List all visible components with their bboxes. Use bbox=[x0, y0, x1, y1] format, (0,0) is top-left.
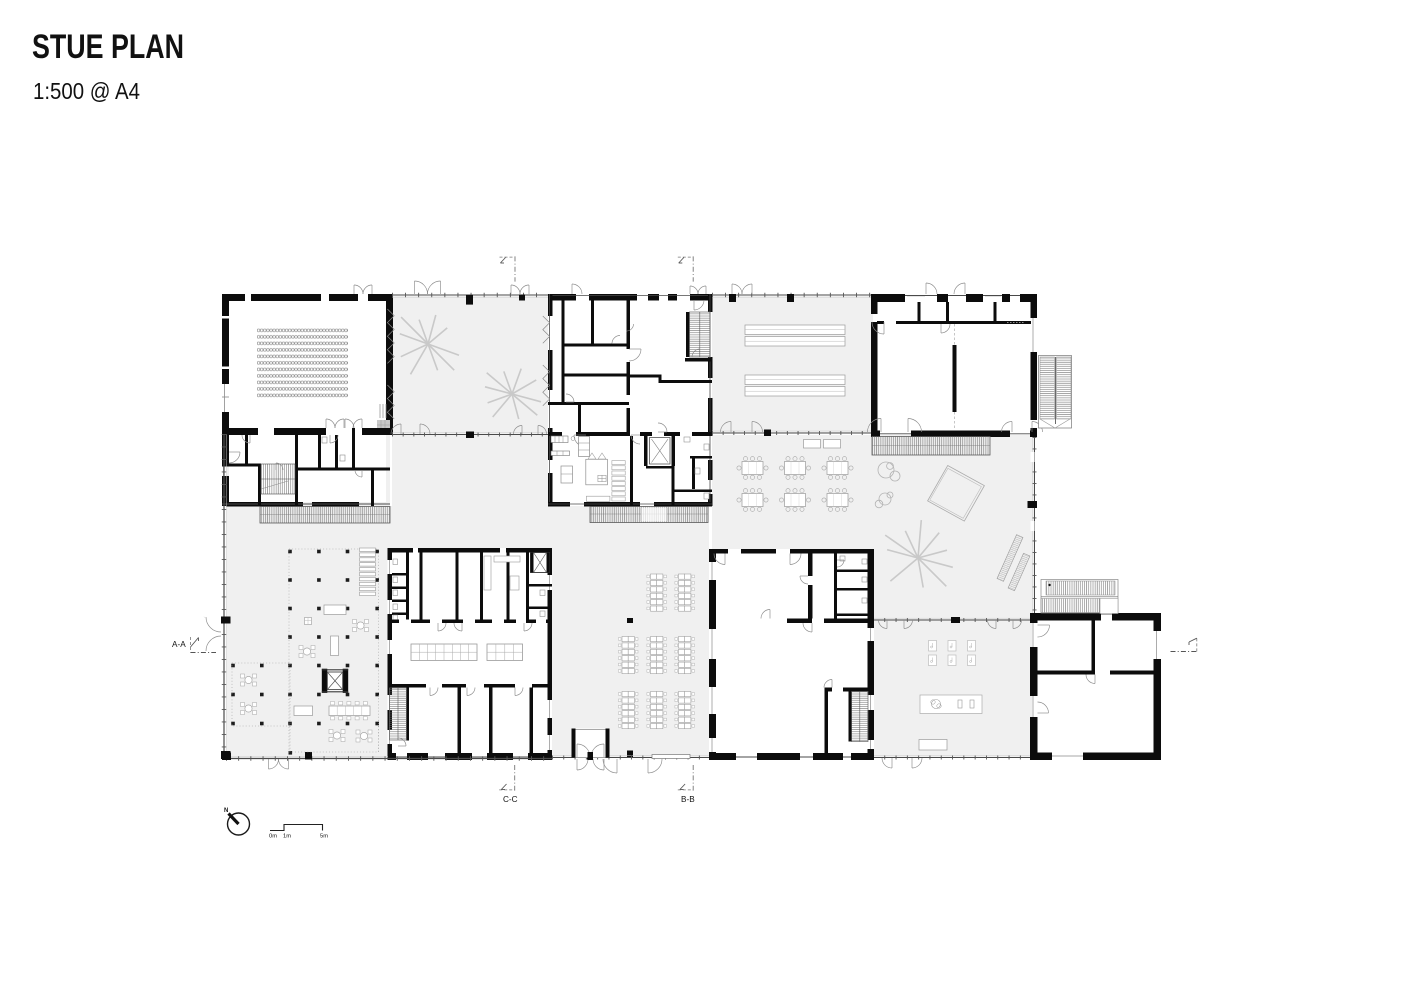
svg-text:0m: 0m bbox=[269, 834, 277, 840]
svg-text:N: N bbox=[224, 808, 228, 814]
svg-text:5m: 5m bbox=[320, 834, 328, 840]
svg-text:B-B: B-B bbox=[681, 795, 695, 804]
svg-text:1m: 1m bbox=[283, 834, 291, 840]
svg-text:STUE PLAN: STUE PLAN bbox=[32, 28, 184, 66]
svg-text:A-A: A-A bbox=[172, 640, 186, 649]
svg-text:C-C: C-C bbox=[503, 795, 518, 804]
svg-text:1:500 @ A4: 1:500 @ A4 bbox=[33, 78, 140, 104]
